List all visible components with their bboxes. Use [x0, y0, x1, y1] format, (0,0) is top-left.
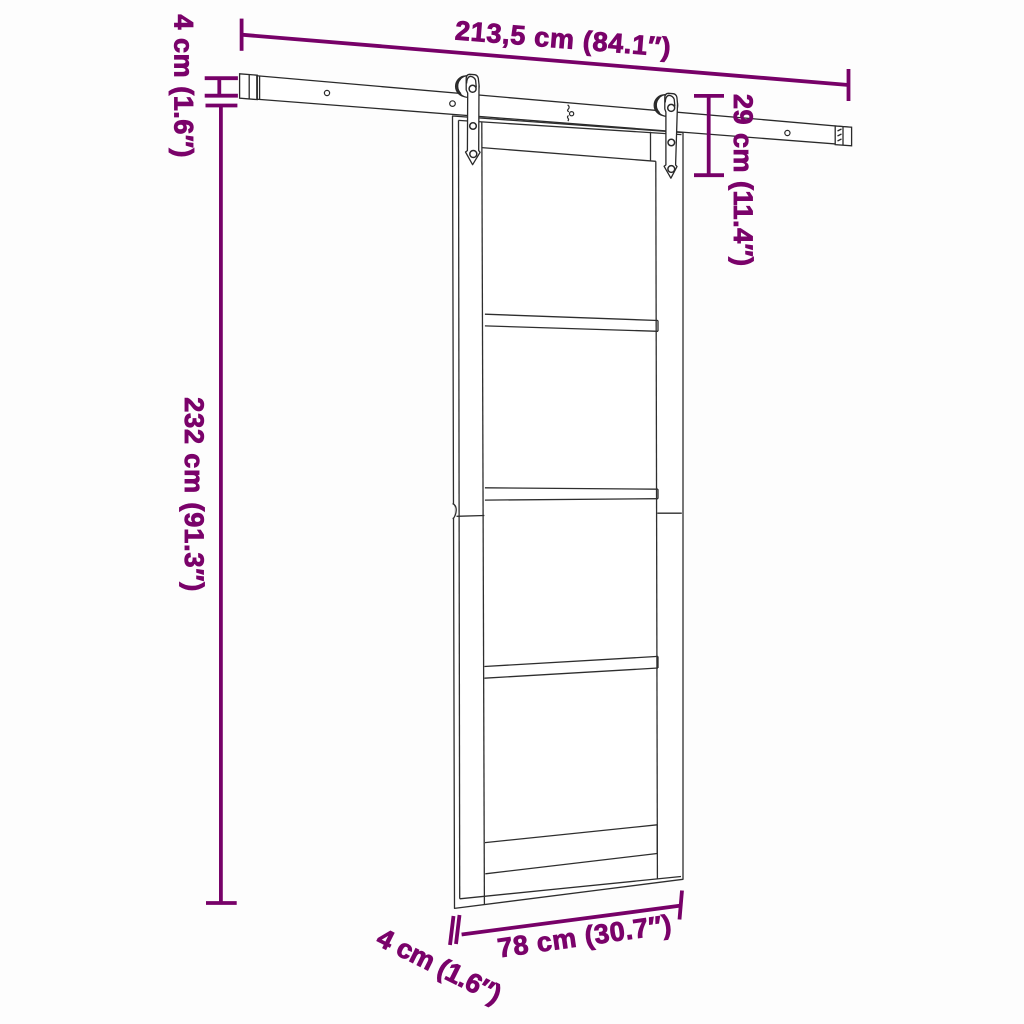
svg-text:232 cm (91.3″): 232 cm (91.3″)	[179, 397, 209, 591]
svg-text:4 cm (1.6″): 4 cm (1.6″)	[169, 14, 199, 157]
svg-text:29 cm (11.4″): 29 cm (11.4″)	[728, 94, 758, 266]
